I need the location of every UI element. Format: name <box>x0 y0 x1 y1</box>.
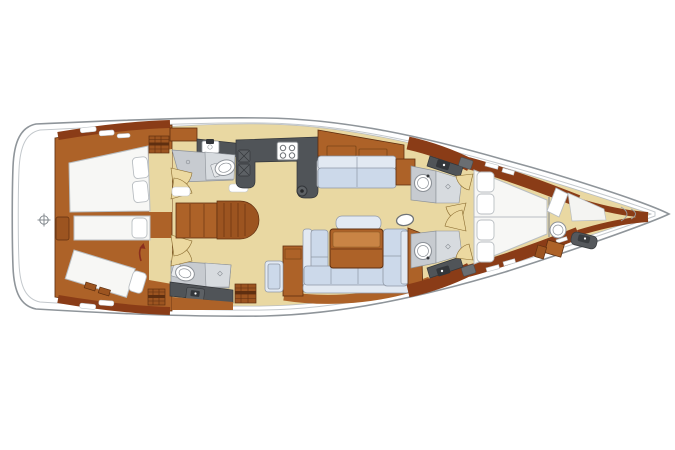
pillow <box>477 194 494 214</box>
stove-icon <box>277 142 298 160</box>
locker-hatch-icon <box>149 136 169 153</box>
washbasin-icon <box>415 243 432 260</box>
hull-window-icon <box>117 133 130 138</box>
boat-floorplan-page <box>0 0 675 450</box>
companionway-cabinet <box>176 203 217 238</box>
deck-hatch-icon <box>172 187 190 196</box>
table-leaf <box>333 232 380 247</box>
mast-post-center <box>300 189 304 193</box>
aft-corridor-lower <box>149 238 172 284</box>
pillow <box>477 172 494 192</box>
locker-hatch-icon <box>235 284 256 303</box>
head-cabinet <box>170 128 197 141</box>
shower-area <box>205 263 231 287</box>
hull-window-icon <box>99 300 114 306</box>
salon-cabinet <box>283 246 303 296</box>
faucet-icon <box>206 139 214 144</box>
nightstand <box>56 217 69 240</box>
pillow <box>132 156 149 178</box>
washbasin-icon <box>550 222 566 238</box>
pillow <box>477 220 494 240</box>
pillow <box>477 242 494 262</box>
pillow <box>132 218 147 238</box>
sofa-backrest-right <box>401 231 408 284</box>
boat-floorplan <box>0 0 675 450</box>
washbasin-icon <box>415 175 432 192</box>
headrest-cushion <box>336 216 381 230</box>
knob-icon <box>194 292 196 294</box>
aft-corridor-upper <box>149 149 172 212</box>
pillow <box>132 180 149 202</box>
nav-seat-cushion <box>268 264 280 289</box>
hull-window-icon <box>99 130 114 136</box>
locker-hatch-icon <box>148 289 165 305</box>
